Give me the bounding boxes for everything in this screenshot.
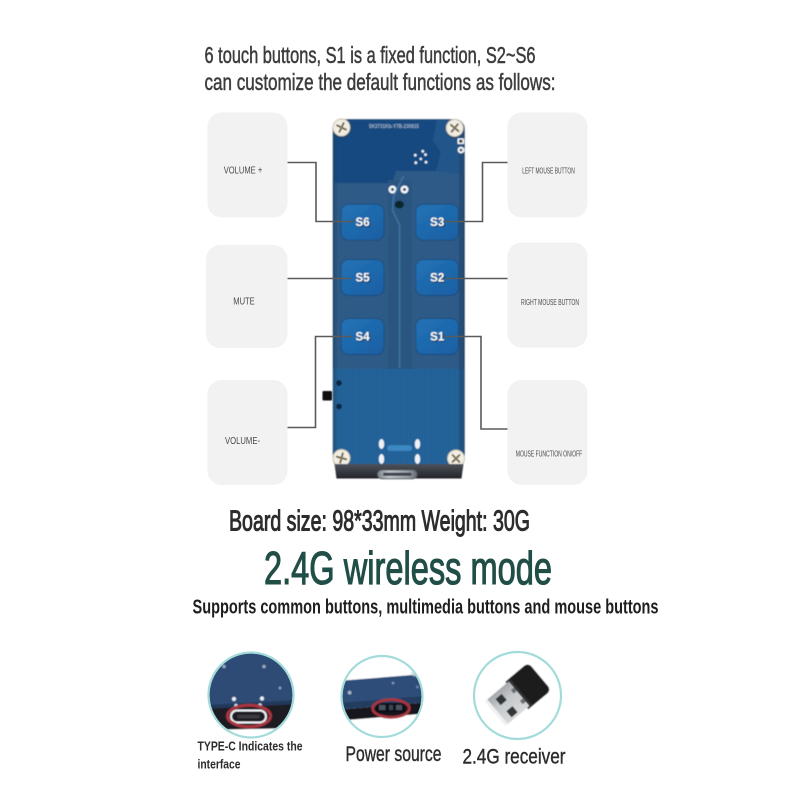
svg-text:S1: S1 — [430, 332, 445, 344]
svg-text:S3: S3 — [430, 217, 444, 229]
svg-text:Power source: Power source — [346, 743, 442, 766]
svg-text:S6: S6 — [356, 217, 370, 229]
svg-text:Supports common buttons, multi: Supports common buttons, multimedia butt… — [193, 597, 659, 619]
svg-text:Board size: 98*33mm Weight: 30: Board size: 98*33mm Weight: 30G — [229, 506, 530, 538]
svg-text:2.4G wireless mode: 2.4G wireless mode — [264, 542, 552, 594]
svg-text:6 touch buttons, S1 is a fixed: 6 touch buttons, S1 is a fixed function,… — [205, 42, 536, 68]
svg-text:LEFT MOUSE BUTTON: LEFT MOUSE BUTTON — [522, 167, 575, 176]
svg-text:RIGHT MOUSE BUTTON: RIGHT MOUSE BUTTON — [521, 298, 579, 307]
svg-text:MOUSE FUNCTION ON/OFF: MOUSE FUNCTION ON/OFF — [516, 450, 583, 459]
svg-text:interface: interface — [198, 757, 241, 772]
svg-text:TYPE-C Indicates the: TYPE-C Indicates the — [198, 739, 303, 754]
svg-text:5K3731Kb-Y7B-230815: 5K3731Kb-Y7B-230815 — [369, 124, 419, 130]
svg-text:can customize the default func: can customize the default functions as f… — [205, 69, 556, 95]
svg-text:VOLUME +: VOLUME + — [224, 166, 263, 177]
svg-text:S4: S4 — [356, 332, 371, 344]
svg-text:S2: S2 — [430, 273, 444, 285]
svg-text:VOLUME-: VOLUME- — [225, 436, 260, 447]
svg-text:S5: S5 — [356, 273, 371, 285]
svg-text:MUTE: MUTE — [233, 297, 255, 308]
svg-text:2.4G receiver: 2.4G receiver — [463, 745, 566, 769]
